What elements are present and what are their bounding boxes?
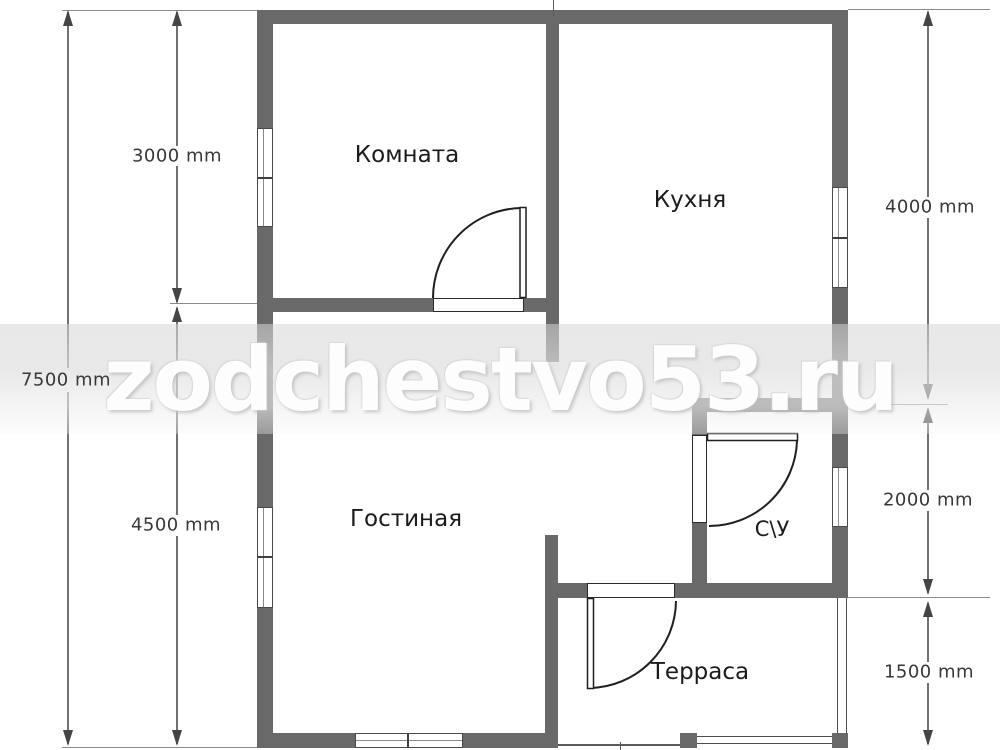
dim-arrow — [63, 10, 73, 26]
extension-su-bottom-right — [848, 597, 990, 598]
terrasa-door-leaf — [588, 599, 594, 689]
dim-label-1500: 1500 mm — [884, 662, 974, 683]
dim-line-4000-a — [927, 12, 929, 197]
dim-arrow — [63, 730, 73, 746]
dim-label-7500: 7500 mm — [21, 370, 111, 391]
room-label-gostinaya: Гостиная — [350, 506, 462, 532]
dim-line-3000-b — [176, 166, 178, 302]
dim-label-2000: 2000 mm — [883, 490, 973, 511]
dim-arrow — [923, 730, 933, 746]
dim-line-3000-a — [176, 12, 178, 146]
dim-arrow — [923, 10, 933, 26]
room-label-terrasa: Терраса — [651, 659, 749, 685]
extension-top-left — [62, 10, 257, 11]
dim-arrow — [923, 601, 933, 617]
su-door-arc — [709, 441, 797, 526]
floor-plan: 7500 mm 3000 mm 4500 mm 4000 mm 2000 mm … — [0, 0, 1000, 750]
dim-line-4500-b — [176, 536, 178, 744]
extension-top-right — [848, 9, 990, 10]
dim-line-7500-a — [67, 12, 69, 368]
dim-arrow — [172, 730, 182, 746]
room-label-su: С\У — [755, 517, 790, 541]
dim-label-3000: 3000 mm — [132, 146, 222, 167]
room-label-kuhnya: Кухня — [654, 187, 726, 213]
room-label-komnata: Комната — [355, 142, 459, 168]
watermark-band: zodchestvo53.ru — [0, 324, 1000, 434]
dim-label-4500: 4500 mm — [131, 515, 221, 536]
komnata-door-arc — [433, 208, 521, 298]
dim-arrow — [923, 579, 933, 595]
dim-arrow — [172, 10, 182, 26]
extension-mid-left — [170, 303, 257, 304]
watermark-text: zodchestvo53.ru — [103, 328, 896, 431]
dim-line-7500-b — [67, 392, 69, 744]
komnata-door-leaf — [520, 208, 526, 298]
su-door-leaf — [708, 434, 798, 441]
extension-bottom-left — [62, 747, 257, 748]
dim-label-4000: 4000 mm — [885, 197, 975, 218]
tick-top-center — [553, 0, 555, 16]
tick-bottom-center — [620, 742, 622, 750]
dim-arrow — [172, 288, 182, 304]
dim-arrow — [172, 306, 182, 322]
